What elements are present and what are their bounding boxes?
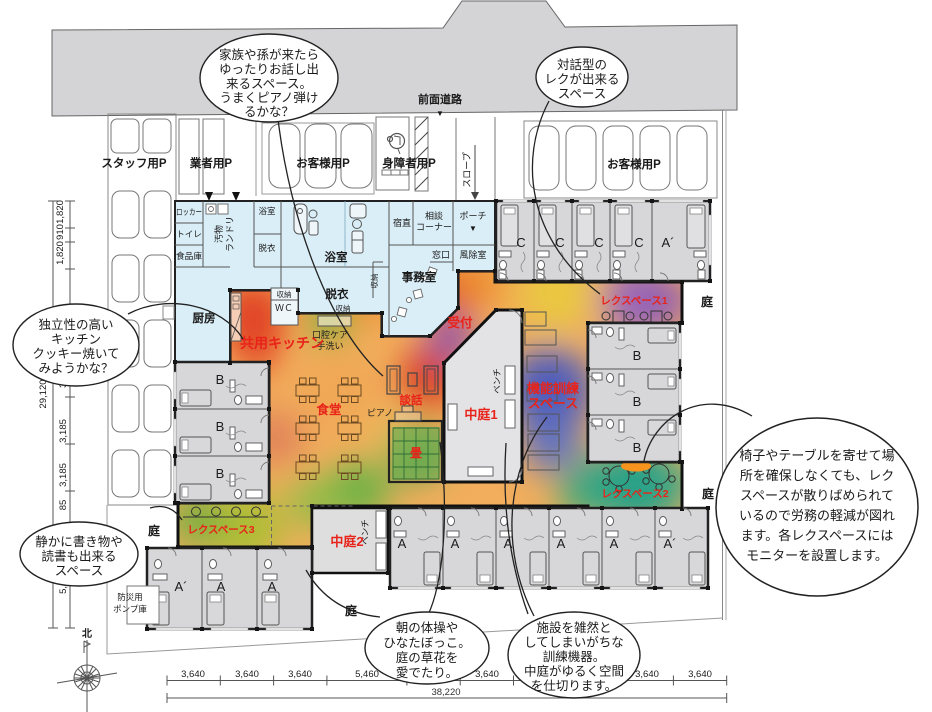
svg-text:3,185: 3,185	[58, 419, 69, 443]
svg-text:C: C	[594, 235, 603, 250]
svg-text:29,120: 29,120	[38, 379, 49, 408]
svg-text:B: B	[633, 348, 642, 363]
svg-text:宿直: 宿直	[393, 217, 411, 228]
svg-text:ロッカー: ロッカー	[176, 207, 202, 217]
svg-text:910: 910	[55, 224, 66, 240]
svg-text:3,640: 3,640	[288, 669, 312, 680]
svg-text:浴室: 浴室	[325, 250, 348, 264]
svg-text:B: B	[633, 394, 642, 409]
svg-text:レクが出来る: レクが出来る	[544, 72, 619, 87]
svg-text:ＷＣ: ＷＣ	[275, 303, 293, 313]
svg-text:収納: 収納	[277, 289, 292, 299]
svg-text:訓練機器。: 訓練機器。	[543, 649, 606, 664]
svg-text:家族や孫が来たら: 家族や孫が来たら	[219, 47, 319, 62]
svg-text:3,640: 3,640	[475, 669, 499, 680]
svg-text:を仕切ります。: を仕切ります。	[531, 679, 617, 693]
svg-text:B: B	[216, 466, 225, 481]
svg-text:A: A	[610, 536, 619, 551]
svg-text:ます。各レクスペースには: ます。各レクスペースには	[741, 528, 894, 543]
svg-text:談話: 談話	[400, 393, 423, 407]
svg-text:A´: A´	[662, 235, 675, 250]
svg-text:椅子やテーブルを寄せて場: 椅子やテーブルを寄せて場	[739, 448, 894, 463]
svg-text:コーナー: コーナー	[416, 222, 452, 232]
svg-text:A´: A´	[175, 579, 188, 594]
svg-text:中庭がゆるく空間: 中庭がゆるく空間	[524, 664, 624, 679]
svg-text:施設を雑然と: 施設を雑然と	[536, 620, 611, 635]
svg-text:お客様用P: お客様用P	[607, 157, 661, 171]
svg-text:浴室: 浴室	[258, 206, 276, 216]
svg-text:レクスペース3: レクスペース3	[187, 524, 254, 536]
svg-text:85: 85	[58, 500, 69, 511]
svg-text:中庭2: 中庭2	[330, 534, 363, 549]
svg-text:▼: ▼	[469, 224, 477, 233]
svg-text:静かに書き物や: 静かに書き物や	[35, 535, 123, 549]
svg-text:38,220: 38,220	[431, 687, 460, 698]
svg-text:朝の体操や: 朝の体操や	[396, 620, 459, 635]
svg-text:業者用P: 業者用P	[189, 156, 232, 170]
svg-text:スロープ: スロープ	[462, 152, 472, 187]
svg-text:B: B	[216, 372, 225, 387]
svg-text:C: C	[634, 235, 643, 250]
svg-text:3,640: 3,640	[181, 669, 205, 680]
svg-text:3,640: 3,640	[635, 669, 659, 680]
svg-text:身障者用P: 身障者用P	[382, 156, 436, 170]
svg-text:収納: 収納	[369, 274, 379, 289]
svg-text:来るスペース。: 来るスペース。	[226, 77, 312, 91]
svg-text:独立性の高い: 独立性の高い	[38, 317, 113, 332]
svg-text:してしまいがちな: してしまいがちな	[524, 635, 624, 650]
svg-text:モニターを設置します。: モニターを設置します。	[746, 548, 888, 563]
svg-text:いるので労務の軽減が図れ: いるので労務の軽減が図れ	[739, 508, 895, 523]
svg-text:ピアノ: ピアノ	[367, 408, 393, 418]
svg-text:A´: A´	[664, 536, 677, 551]
svg-text:北: 北	[82, 627, 92, 640]
svg-text:ランドリ: ランドリ	[225, 216, 235, 252]
svg-text:スペース: スペース	[558, 87, 607, 101]
svg-text:ベンチ: ベンチ	[492, 368, 502, 394]
svg-text:3,185: 3,185	[58, 463, 69, 487]
svg-text:庭: 庭	[701, 294, 713, 309]
svg-text:B: B	[216, 419, 225, 434]
svg-text:3,640: 3,640	[235, 669, 259, 680]
svg-text:C: C	[516, 235, 525, 250]
svg-text:ポーチ: ポーチ	[459, 211, 486, 221]
svg-text:機能訓練: 機能訓練	[527, 381, 579, 396]
svg-text:スペース: スペース	[55, 564, 104, 578]
svg-text:うまくピアノ弾け: うまくピアノ弾け	[220, 91, 319, 105]
svg-text:トイレ: トイレ	[176, 229, 202, 239]
svg-text:対話型の: 対話型の	[557, 57, 607, 72]
svg-text:お客様用P: お客様用P	[296, 156, 350, 170]
svg-text:受付: 受付	[447, 315, 473, 330]
svg-text:中庭1: 中庭1	[464, 407, 497, 422]
svg-text:3,640: 3,640	[688, 669, 712, 680]
svg-text:相談: 相談	[425, 210, 443, 221]
svg-text:汚物: 汚物	[213, 225, 224, 243]
svg-text:防災用: 防災用	[117, 592, 143, 602]
svg-text:事務室: 事務室	[402, 270, 437, 284]
svg-text:レクスペース2: レクスペース2	[601, 488, 668, 500]
svg-text:共用キッチン: 共用キッチン	[240, 335, 324, 351]
svg-text:庭: 庭	[702, 486, 714, 501]
svg-text:るかな？: るかな？	[244, 105, 294, 119]
svg-text:キッチン: キッチン	[51, 333, 101, 347]
svg-text:スペースが散りばめられて: スペースが散りばめられて	[740, 488, 894, 503]
svg-text:ゆったりお話し出: ゆったりお話し出	[219, 62, 319, 77]
svg-text:みようかな？: みようかな？	[38, 362, 113, 376]
svg-text:レクスペース1: レクスペース1	[600, 295, 667, 307]
svg-text:ひなたぼっこ。: ひなたぼっこ。	[383, 636, 471, 650]
svg-text:5,460: 5,460	[355, 669, 379, 680]
svg-text:スペース: スペース	[528, 396, 578, 411]
svg-text:風除室: 風除室	[459, 249, 486, 260]
svg-text:スタッフ用P: スタッフ用P	[101, 156, 166, 170]
svg-text:収納: 収納	[336, 303, 351, 313]
svg-text:所を確保しなくても、レク: 所を確保しなくても、レク	[740, 468, 895, 483]
svg-text:窓口: 窓口	[432, 249, 450, 260]
svg-text:A: A	[451, 536, 460, 551]
svg-text:1,820: 1,820	[55, 200, 66, 224]
svg-text:読書も出来る: 読書も出来る	[41, 549, 116, 564]
svg-text:A: A	[268, 579, 277, 594]
svg-text:▼: ▼	[436, 109, 444, 118]
svg-text:1,820: 1,820	[55, 241, 66, 265]
svg-text:愛でたり。: 愛でたり。	[396, 666, 458, 680]
svg-text:A: A	[557, 536, 566, 551]
svg-text:食品庫: 食品庫	[176, 251, 202, 261]
svg-text:A: A	[398, 536, 407, 551]
svg-text:ポンプ庫: ポンプ庫	[113, 604, 147, 614]
svg-text:畳: 畳	[410, 446, 422, 460]
svg-text:脱衣: 脱衣	[258, 243, 276, 253]
svg-text:食堂: 食堂	[315, 402, 341, 417]
svg-text:庭: 庭	[148, 523, 160, 538]
svg-text:庭の草花を: 庭の草花を	[396, 650, 459, 665]
svg-text:前面道路: 前面道路	[418, 92, 463, 106]
svg-text:クッキー焼いて: クッキー焼いて	[32, 347, 119, 361]
svg-text:B: B	[633, 440, 642, 455]
svg-text:A: A	[217, 579, 226, 594]
